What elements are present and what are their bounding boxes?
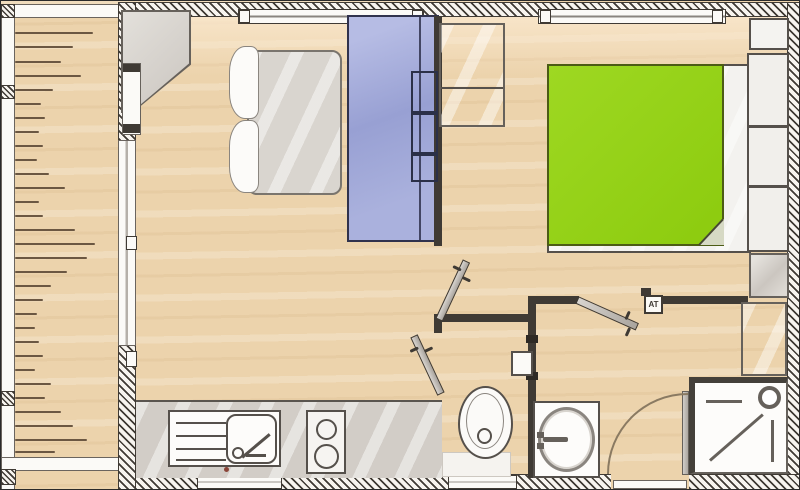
window-bedroom bbox=[538, 9, 726, 24]
water-heater-label: AT bbox=[648, 300, 658, 309]
pillow bbox=[229, 120, 259, 193]
railing-post bbox=[1, 85, 15, 99]
deck-plank bbox=[15, 145, 43, 147]
bedroom-wall-left bbox=[528, 296, 579, 304]
deck-plank bbox=[15, 159, 37, 161]
deck-plank bbox=[15, 103, 41, 105]
deck-railing-left bbox=[1, 4, 15, 490]
wc-window bbox=[448, 475, 517, 489]
bay-handle bbox=[126, 236, 137, 250]
deck-plank bbox=[15, 313, 37, 315]
toilet bbox=[458, 386, 513, 459]
deck-plank bbox=[15, 243, 95, 245]
deck-plank bbox=[15, 383, 51, 385]
hob bbox=[306, 410, 346, 474]
shelf-divider bbox=[749, 125, 787, 128]
cistern bbox=[511, 351, 533, 376]
deck-plank bbox=[15, 271, 67, 273]
water-heater-label-box: AT bbox=[644, 295, 663, 314]
deck-plank bbox=[15, 187, 65, 189]
hob-burner bbox=[316, 419, 337, 440]
deck-railing-bottom bbox=[1, 457, 120, 471]
drainer-line bbox=[176, 435, 226, 437]
deck-plank bbox=[15, 355, 43, 357]
deck-plank bbox=[15, 341, 39, 343]
deck-plank bbox=[15, 117, 45, 119]
deck-plank bbox=[15, 215, 43, 217]
deck-plank bbox=[15, 299, 43, 301]
deck-plank bbox=[15, 229, 75, 231]
bay-handle bbox=[126, 351, 137, 367]
radiator-cap bbox=[123, 124, 140, 133]
deck-plank bbox=[15, 439, 87, 441]
deck-plank bbox=[15, 131, 39, 133]
bedside-shelves bbox=[747, 53, 789, 252]
bedroom-cabinet bbox=[439, 23, 505, 127]
wc-wall-top bbox=[434, 314, 535, 322]
wall-stud bbox=[526, 335, 538, 343]
railing-post bbox=[1, 469, 16, 485]
deck-plank bbox=[15, 201, 39, 203]
sink-bowl bbox=[226, 414, 277, 464]
railing-post bbox=[1, 391, 15, 406]
double-bed-duvet bbox=[547, 64, 724, 246]
deck-plank bbox=[15, 32, 93, 34]
counter-knob bbox=[224, 467, 229, 472]
deck-plank bbox=[15, 425, 73, 427]
bunk-ladder-step bbox=[411, 71, 438, 113]
shower-tray bbox=[689, 377, 788, 474]
bunk-ladder-step bbox=[411, 154, 438, 182]
deck-plank bbox=[15, 451, 55, 453]
faucet-knob bbox=[537, 443, 544, 449]
shower-line-h bbox=[706, 400, 742, 403]
railing-post bbox=[1, 4, 15, 18]
deck-planks bbox=[1, 1, 121, 490]
window-stop bbox=[540, 10, 551, 23]
window-stop bbox=[712, 10, 723, 23]
kitchen-sink-unit bbox=[168, 410, 281, 467]
deck-plank bbox=[15, 369, 35, 371]
shower-line-v bbox=[771, 420, 774, 462]
drainer-line bbox=[176, 448, 226, 450]
deck-plank bbox=[15, 61, 61, 63]
single-bed-duvet bbox=[247, 50, 342, 195]
deck-plank bbox=[15, 46, 73, 48]
radiator bbox=[122, 63, 141, 135]
deck-plank bbox=[15, 257, 87, 259]
drainer-line bbox=[176, 422, 226, 424]
drainer-line bbox=[176, 459, 226, 461]
bunk-ladder-step bbox=[411, 113, 438, 154]
shower-drain bbox=[758, 386, 781, 409]
deck-plank bbox=[15, 75, 81, 77]
bedside-shelf-top bbox=[749, 18, 789, 50]
faucet bbox=[543, 437, 568, 442]
bedside-cabinet bbox=[749, 253, 789, 298]
deck-plank bbox=[15, 327, 35, 329]
shelf-divider bbox=[749, 185, 787, 188]
shower-line-diag bbox=[709, 413, 764, 461]
pillow bbox=[229, 46, 259, 119]
window-stop bbox=[239, 10, 250, 23]
bathroom-cabinet bbox=[741, 302, 787, 376]
sink-faucet-line bbox=[246, 454, 266, 457]
deck-plank bbox=[15, 89, 53, 91]
deck-railing-top bbox=[1, 4, 120, 18]
cabinet-shelf-line bbox=[441, 87, 503, 89]
entrance-threshold bbox=[613, 480, 687, 489]
washbasin-unit bbox=[533, 401, 600, 478]
bedroom-wall-right bbox=[649, 296, 748, 304]
deck-plank bbox=[15, 397, 45, 399]
deck-plank bbox=[15, 285, 51, 287]
deck-plank bbox=[15, 173, 49, 175]
hob-burner bbox=[314, 444, 339, 469]
radiator-cap bbox=[123, 64, 140, 72]
deck-plank bbox=[15, 411, 61, 413]
toilet-flush bbox=[477, 428, 492, 444]
floor-plan: AT bbox=[0, 0, 800, 490]
